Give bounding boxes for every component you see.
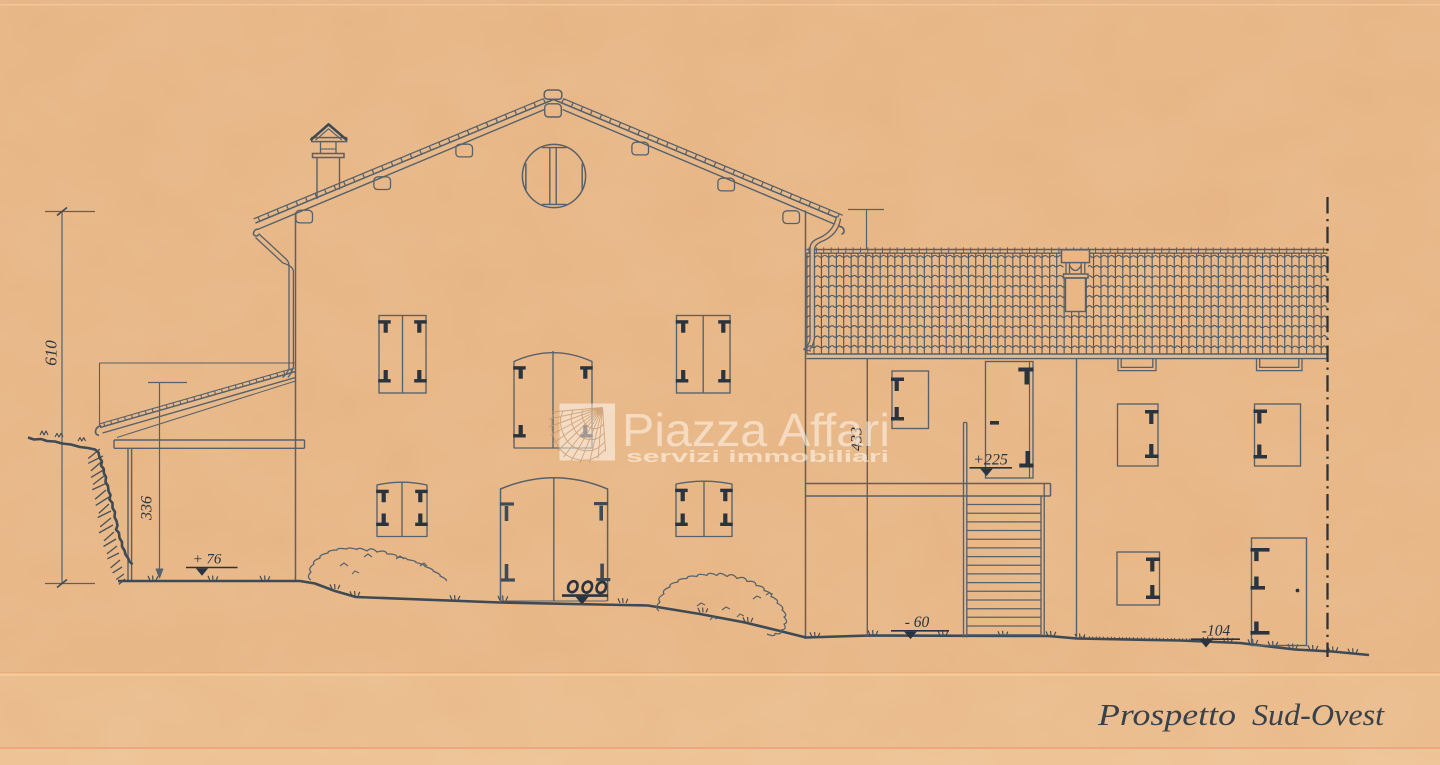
svg-text:servizi immobiliari: servizi immobiliari (626, 448, 889, 466)
svg-text:+ 76: + 76 (193, 552, 222, 568)
svg-text:Prospetto: Prospetto (1097, 697, 1236, 732)
svg-text:336: 336 (139, 496, 156, 521)
svg-text:-104: -104 (1202, 623, 1231, 640)
svg-text:610: 610 (42, 340, 61, 366)
svg-text:Sud-Ovest: Sud-Ovest (1252, 697, 1385, 732)
svg-text:+225: +225 (973, 452, 1008, 469)
svg-text:- 60: - 60 (905, 614, 930, 631)
